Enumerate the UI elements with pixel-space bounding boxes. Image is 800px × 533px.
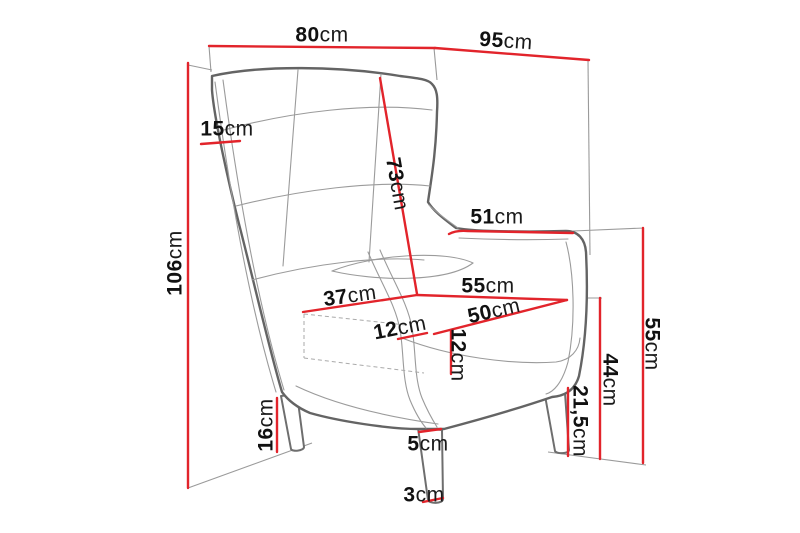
armchair-dimension-diagram: 80cm 95cm 15cm 73cm 106cm 51cm 55cm 50cm… (0, 0, 800, 533)
label-leg-top-width: 5cm (407, 434, 448, 455)
wall-back-corner (588, 60, 590, 255)
tick-width-left (209, 46, 211, 72)
tick-armrest-height (573, 228, 644, 231)
tick-height-top (188, 65, 212, 70)
diagram-canvas (0, 0, 800, 533)
tick-width-right (434, 48, 437, 80)
label-seat-width-back: 55cm (461, 276, 514, 297)
label-armrest-length: 51cm (470, 207, 523, 228)
label-total-height: 106cm (165, 230, 186, 296)
label-leg-bottom-width: 3cm (403, 485, 444, 506)
label-under-seat-clearance: 21,5cm (570, 385, 591, 457)
chair-body-outline (212, 68, 587, 429)
label-seat-height: 44cm (600, 353, 621, 406)
label-side-depth: 95cm (479, 29, 534, 54)
label-front-width: 80cm (295, 25, 348, 46)
label-armrest-height: 55cm (642, 317, 663, 370)
label-seat-cushion-thickness: 12cm (448, 328, 469, 381)
label-wing-thickness: 15cm (200, 119, 253, 140)
label-front-left-leg-height: 16cm (256, 398, 277, 451)
